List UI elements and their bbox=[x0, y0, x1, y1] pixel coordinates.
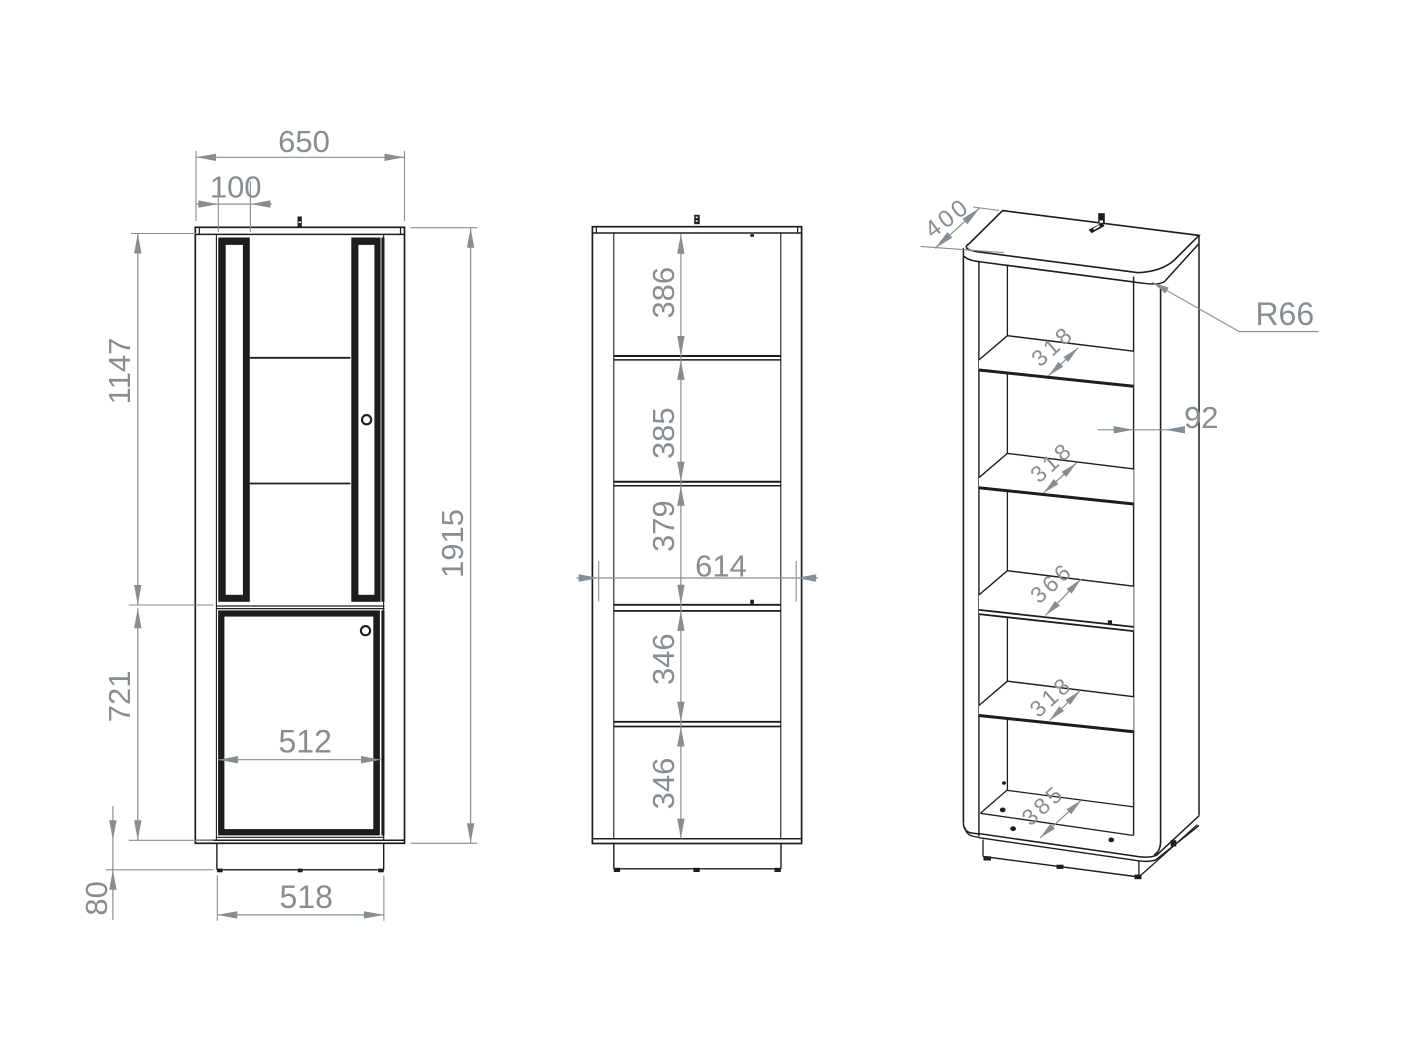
svg-text:1147: 1147 bbox=[102, 338, 137, 405]
svg-text:346: 346 bbox=[646, 758, 681, 810]
svg-text:518: 518 bbox=[280, 879, 333, 915]
svg-text:92: 92 bbox=[1184, 400, 1218, 435]
svg-text:650: 650 bbox=[278, 124, 330, 159]
svg-text:386: 386 bbox=[646, 267, 681, 319]
svg-text:385: 385 bbox=[646, 407, 681, 459]
svg-text:100: 100 bbox=[210, 170, 262, 205]
svg-text:379: 379 bbox=[646, 500, 681, 552]
svg-text:512: 512 bbox=[279, 724, 332, 760]
svg-text:1915: 1915 bbox=[435, 509, 470, 578]
svg-text:80: 80 bbox=[79, 881, 114, 915]
svg-text:721: 721 bbox=[102, 671, 137, 723]
svg-text:346: 346 bbox=[646, 633, 681, 685]
svg-text:R66: R66 bbox=[1255, 296, 1314, 332]
svg-text:614: 614 bbox=[695, 549, 747, 584]
